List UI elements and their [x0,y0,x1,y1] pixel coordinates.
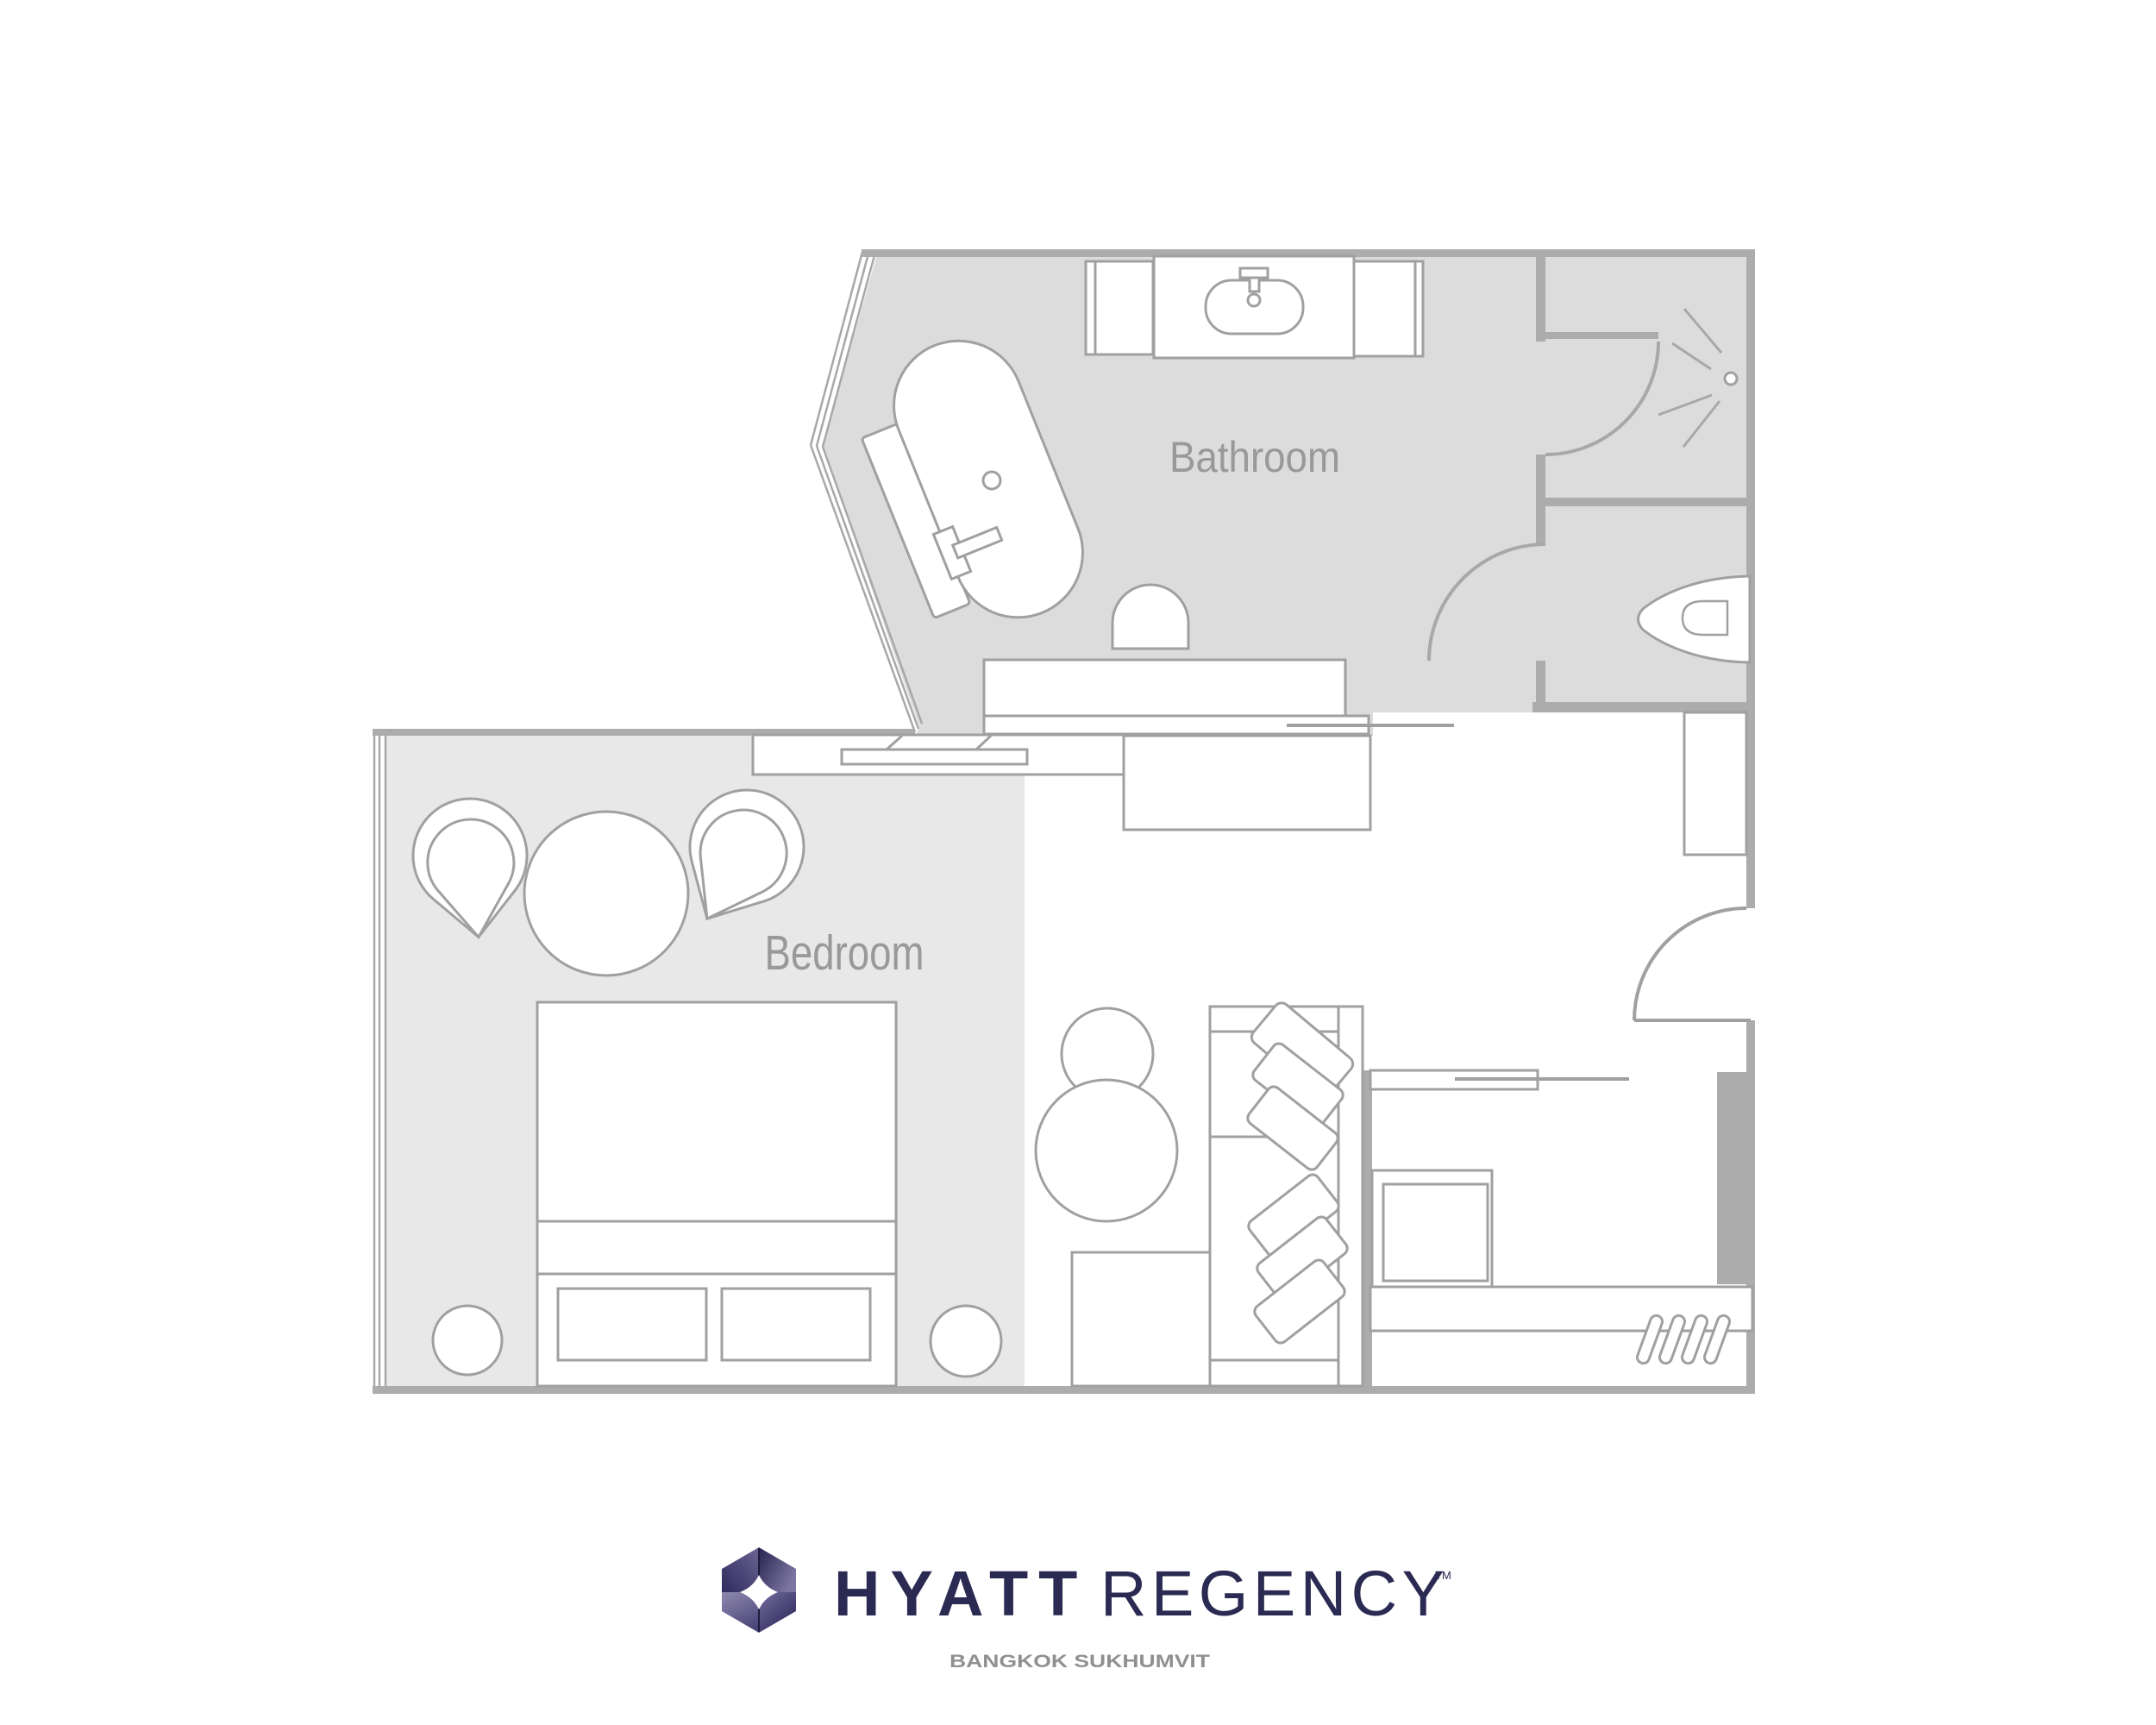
svg-text:BANGKOK SUKHUMVIT: BANGKOK SUKHUMVIT [950,1652,1210,1672]
svg-text:REGENCY: REGENCY [1100,1558,1449,1629]
svg-text:Bedroom: Bedroom [765,925,924,981]
svg-text:TM: TM [1435,1569,1451,1582]
svg-text:Bathroom: Bathroom [1169,433,1340,481]
svg-text:HYATT: HYATT [834,1558,1087,1629]
